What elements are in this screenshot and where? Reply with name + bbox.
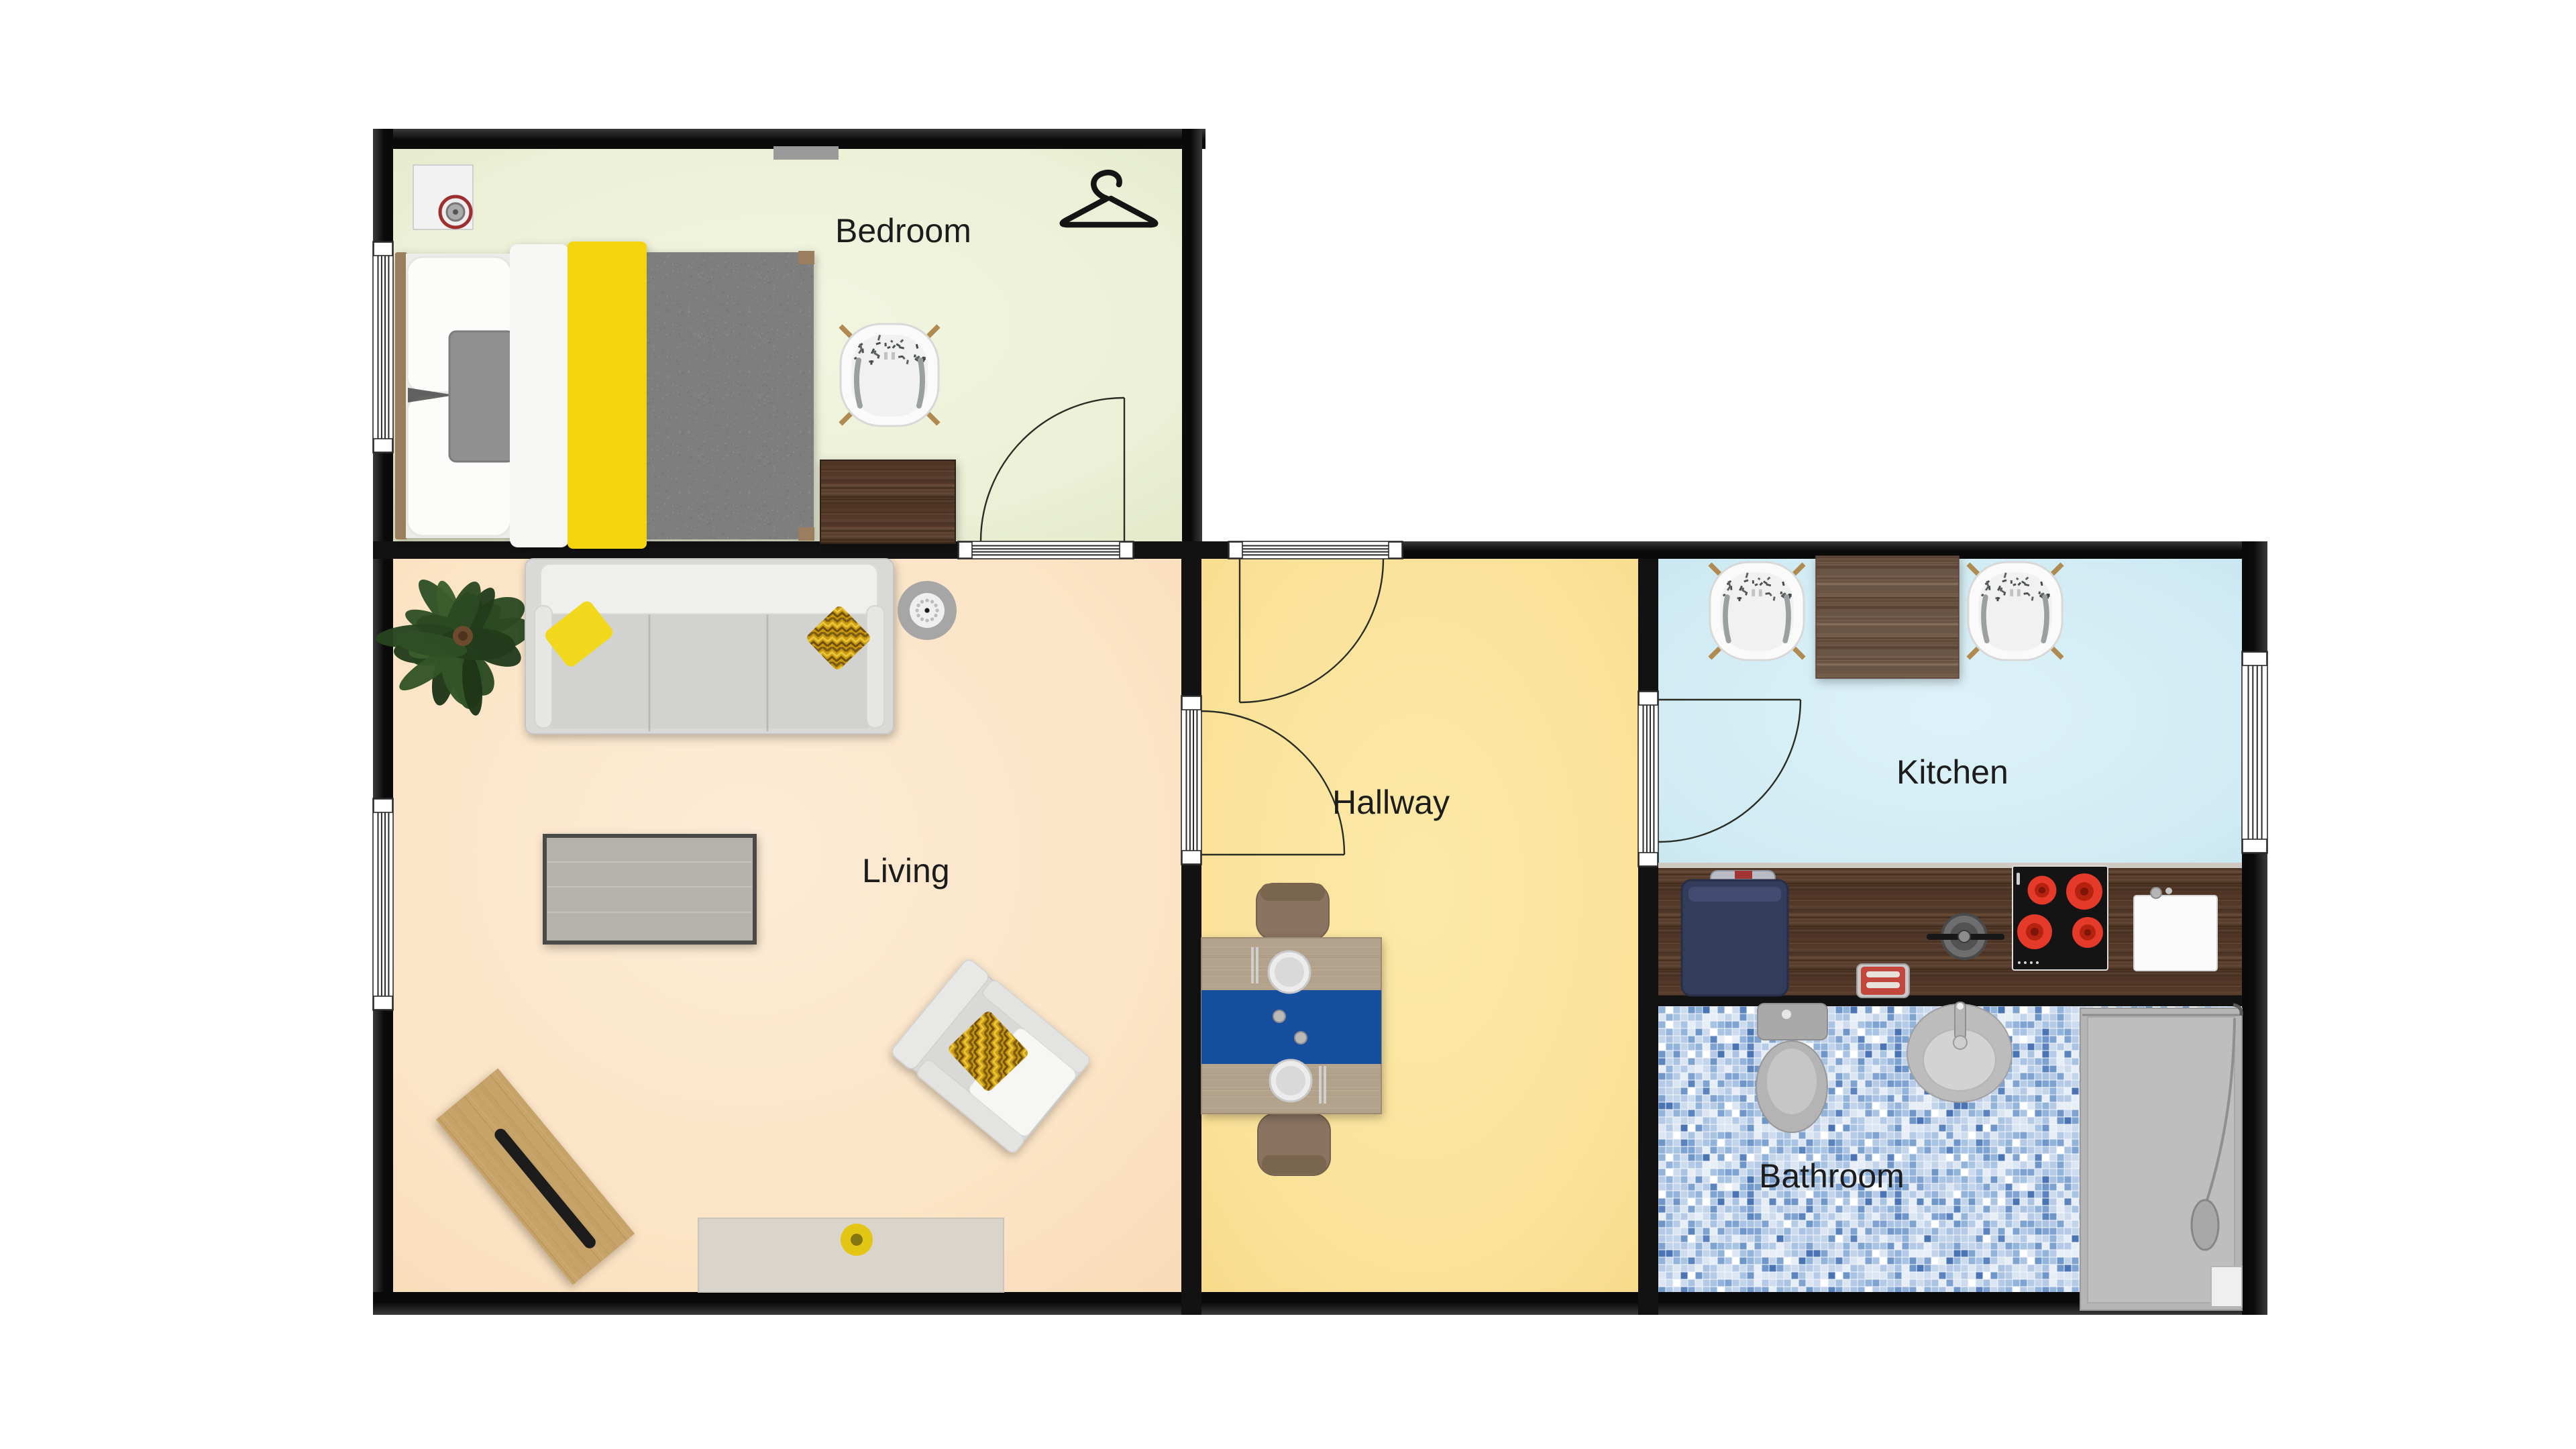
svg-text:Bathroom: Bathroom [1759,1157,1904,1195]
svg-text:Hallway: Hallway [1332,784,1450,821]
svg-text:Living: Living [862,852,950,890]
svg-text:Bedroom: Bedroom [835,212,971,250]
svg-text:Kitchen: Kitchen [1896,753,2008,791]
